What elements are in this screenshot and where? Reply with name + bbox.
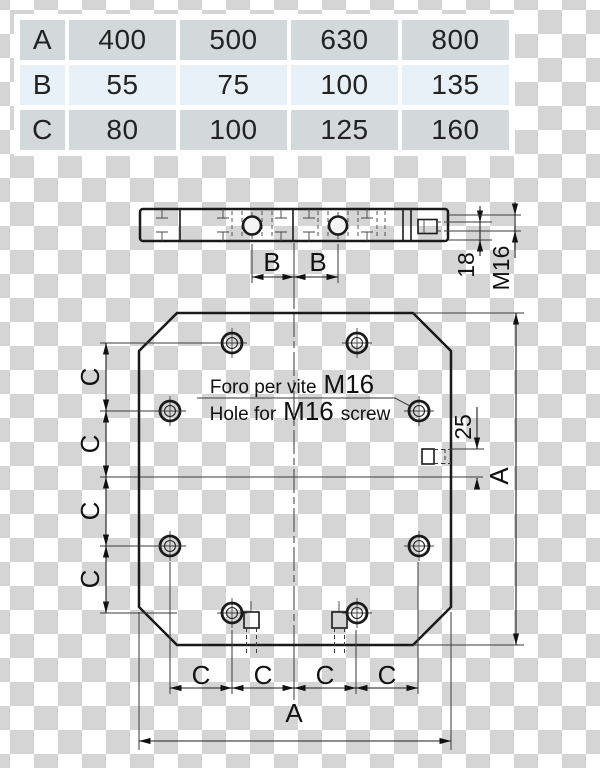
side-slot-detail: [422, 449, 451, 464]
dim-label-c-left-3: C: [75, 502, 105, 521]
note-line-2: Hole forM16screw: [210, 396, 391, 426]
dim-label-c-bottom-3: C: [316, 660, 335, 690]
dim-label-m16: M16: [488, 246, 514, 291]
technical-drawing: B B 18 M16: [0, 0, 600, 768]
screw-section-detail: [418, 220, 448, 234]
hidden-thread-lines: [156, 209, 385, 241]
technical-datasheet-page: { "spec_table": { "rows": [ {"label": "A…: [0, 0, 600, 768]
dim-label-a-width: A: [285, 698, 303, 728]
dim-label-25: 25: [450, 414, 476, 440]
dim-a-width: A: [139, 612, 451, 750]
dim-label-c-bottom-1: C: [192, 660, 211, 690]
side-view-hole: [329, 212, 347, 239]
dim-label-c-left-4: C: [75, 570, 105, 589]
plate-outline: [139, 313, 451, 645]
side-view-hole: [243, 212, 261, 239]
dim-label-c-bottom-4: C: [378, 660, 397, 690]
dim-b: B B: [252, 244, 338, 283]
side-view: B B 18 M16: [140, 202, 521, 290]
plate-top-view: Foro per viteM16 Hole forM16screw: [139, 313, 451, 653]
dim-a-height: A: [413, 313, 524, 645]
hole-note: Foro per viteM16 Hole forM16screw: [197, 369, 410, 426]
dim-label-a-height: A: [484, 467, 514, 485]
dim-18: 18: [448, 206, 492, 278]
dim-label-18: 18: [453, 252, 479, 278]
note-line-1: Foro per viteM16: [210, 369, 374, 399]
dim-chain-left: C C C C: [75, 343, 217, 613]
dim-label-c-bottom-2: C: [254, 660, 273, 690]
dim-label-b-right: B: [309, 247, 326, 277]
dim-label-c-left-1: C: [75, 368, 105, 387]
dim-label-b-left: B: [263, 247, 280, 277]
dim-label-c-left-2: C: [75, 435, 105, 454]
